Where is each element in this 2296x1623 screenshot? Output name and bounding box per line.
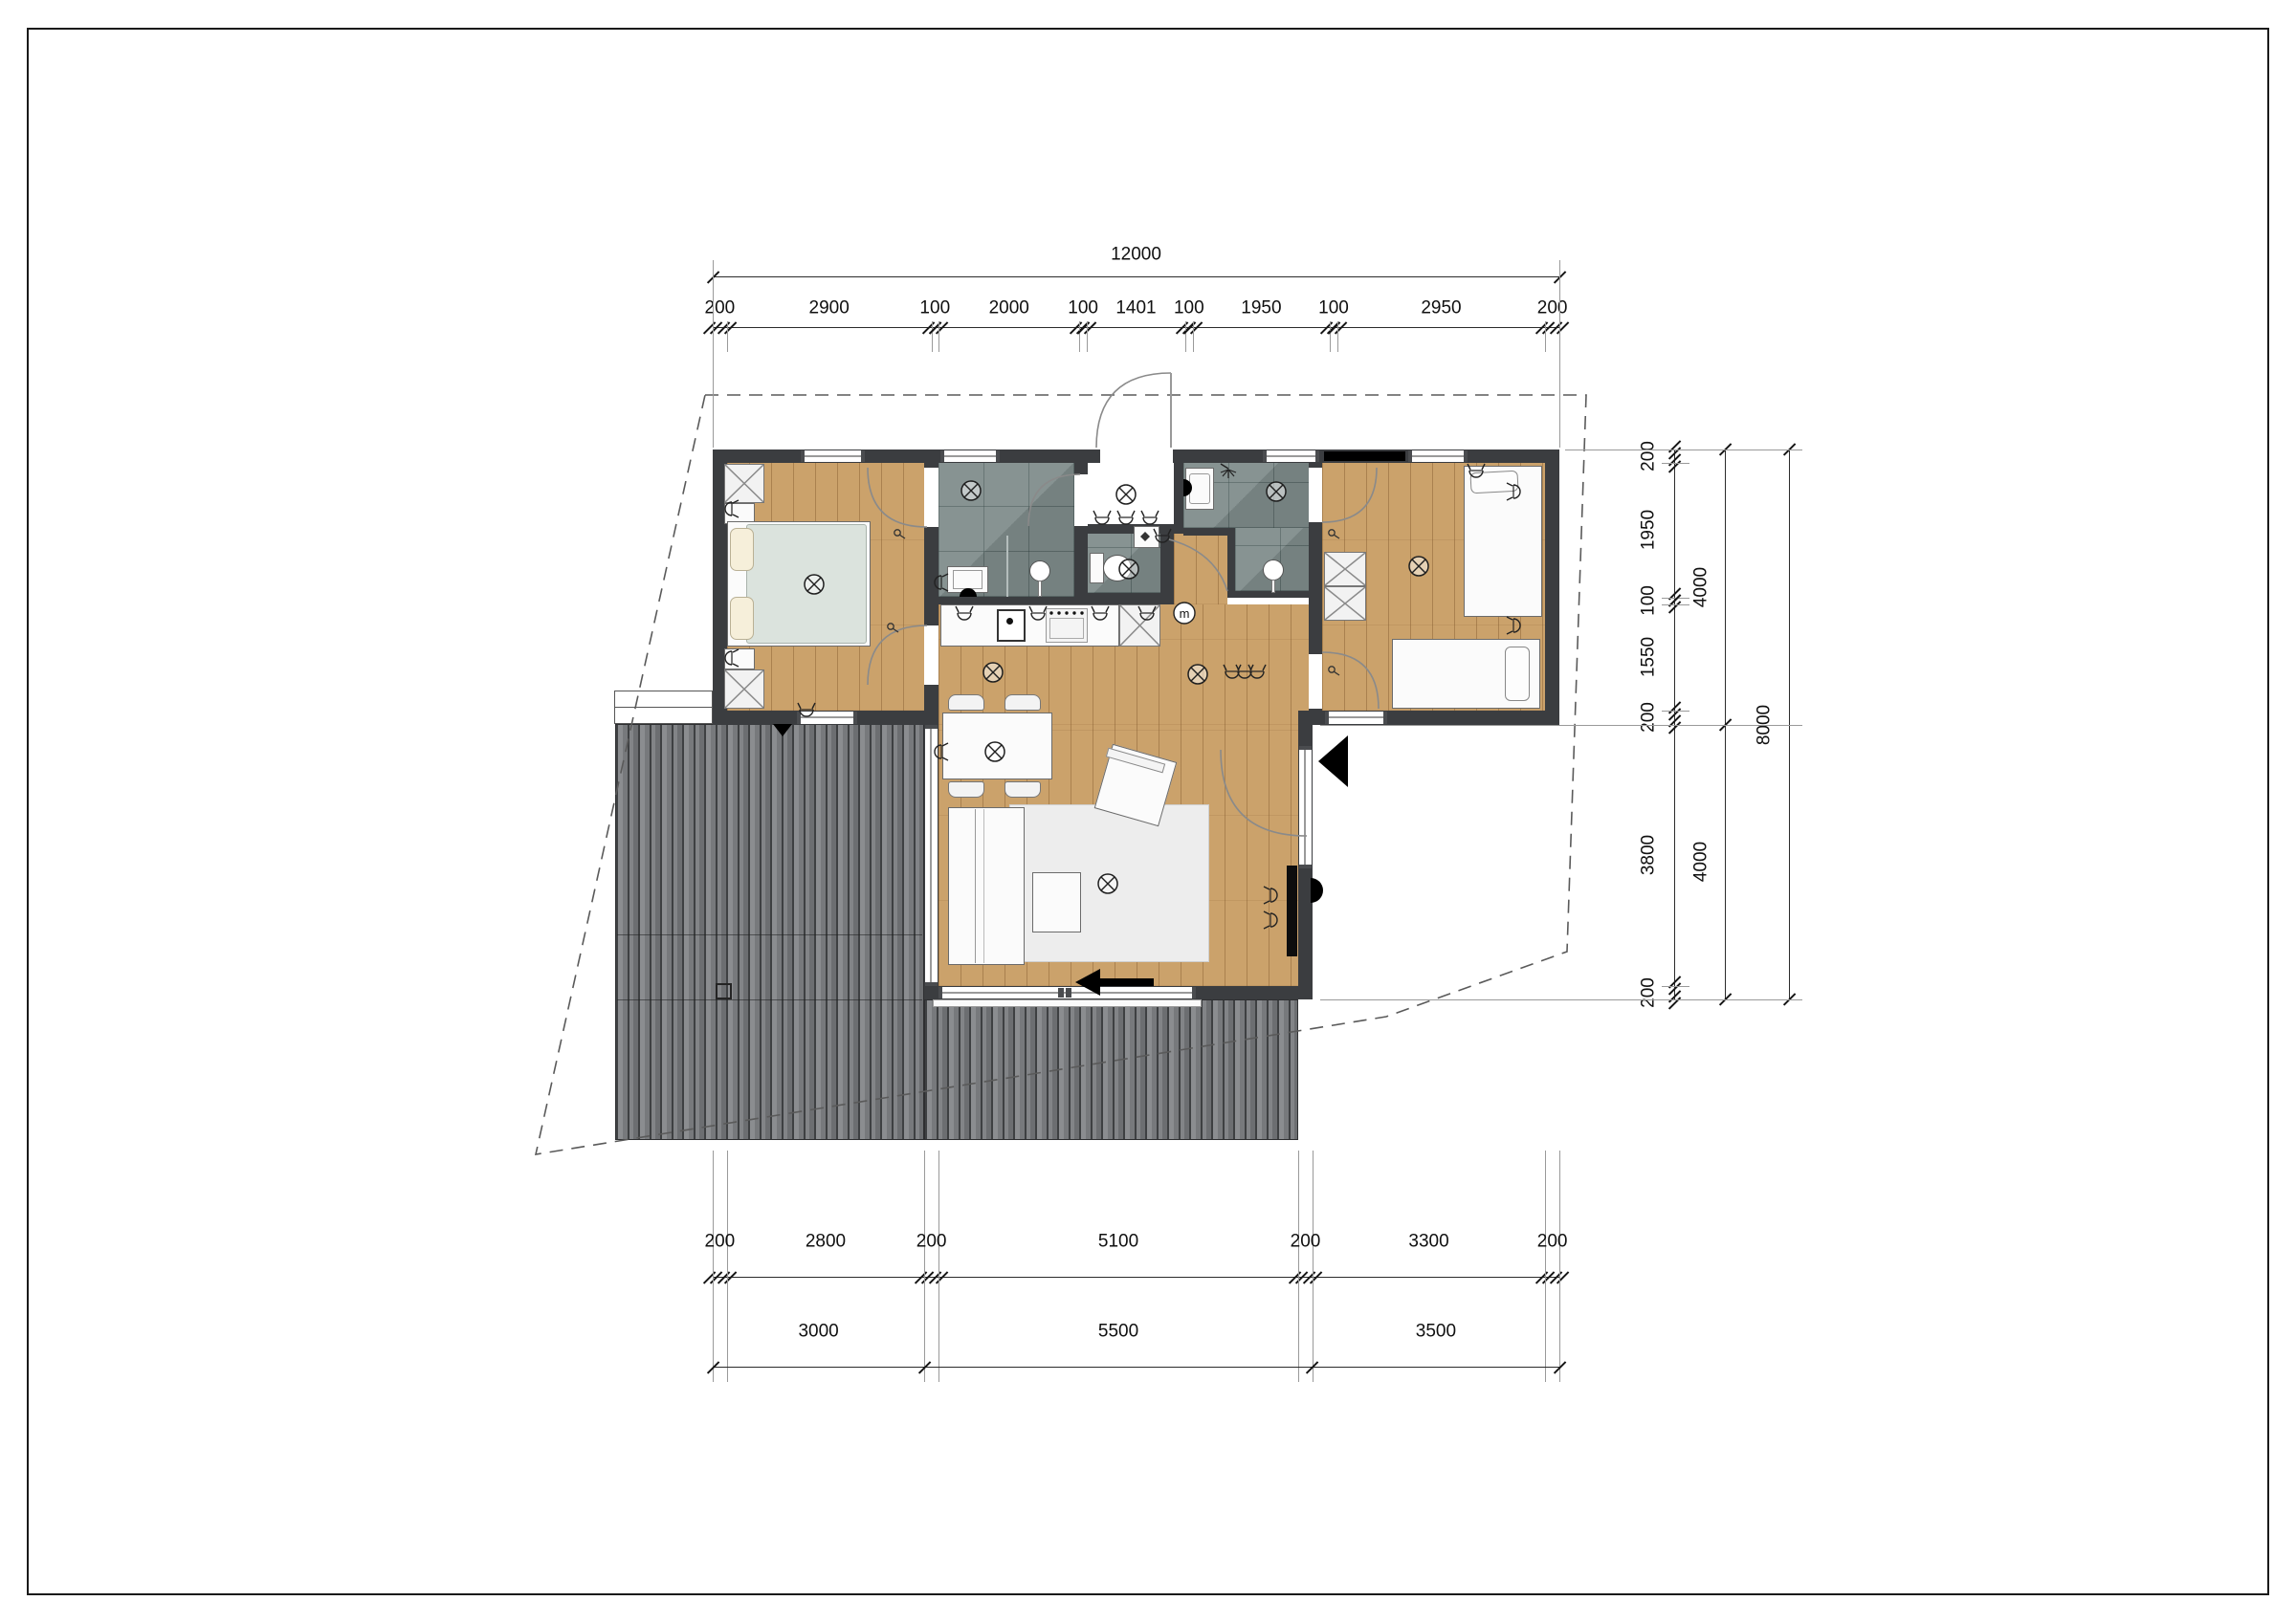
dim-label: 100 (1068, 299, 1098, 318)
socket-icon (1093, 511, 1111, 524)
extension-line (727, 321, 728, 352)
door-handle-icon (888, 624, 898, 632)
dim-label: 200 (705, 1233, 736, 1251)
socket-icon (1507, 483, 1520, 500)
ceiling-light-icon (1119, 559, 1138, 579)
dim-label: 4000 (1692, 842, 1711, 882)
socket-icon (956, 606, 973, 620)
dim-label: 200 (1640, 977, 1658, 1008)
ceiling-light-icon (1267, 482, 1286, 501)
extension-line (1330, 321, 1331, 352)
ceiling-light-icon (983, 663, 1003, 682)
extension-line (932, 321, 933, 352)
dim-label: 3000 (798, 1323, 838, 1341)
extension-line (1662, 463, 1689, 464)
ceiling-light-icon (1116, 485, 1136, 504)
door-swing-icon (1169, 539, 1227, 591)
extension-line (1559, 1151, 1560, 1382)
socket-icon (935, 743, 948, 760)
dim-label: 5100 (1098, 1233, 1138, 1251)
door-handle-icon (1329, 530, 1339, 538)
extension-line (713, 260, 714, 448)
dim-label: 1401 (1115, 299, 1156, 318)
meter-icon: m (1174, 603, 1195, 624)
extension-line (1337, 321, 1338, 352)
dim-label: 100 (1174, 299, 1204, 318)
door-swing-icon (868, 625, 927, 685)
dim-label: 3300 (1408, 1233, 1448, 1251)
extension-line (1662, 711, 1689, 712)
door-swing-icon (868, 468, 927, 527)
dim-label: 100 (1640, 585, 1658, 616)
ceiling-light-icon (1188, 665, 1207, 684)
extension-line (1087, 321, 1088, 352)
dim-label: 200 (916, 1233, 947, 1251)
ceiling-light-icon (961, 481, 981, 500)
socket-icon (1138, 606, 1156, 620)
door-handle-icon (1329, 667, 1339, 675)
ceiling-light-icon (1098, 874, 1117, 893)
dim-label: 200 (705, 299, 736, 318)
dim-line (713, 327, 1559, 328)
cooktop-knob (1072, 611, 1075, 614)
extension-line (1545, 1151, 1546, 1382)
shower-icon (1221, 464, 1236, 478)
cooktop-knob (1057, 611, 1060, 614)
door-swing-icon (1322, 468, 1377, 522)
dim-label: 3500 (1416, 1323, 1456, 1341)
extension-line (1545, 321, 1546, 352)
dim-label: 12000 (1111, 246, 1161, 264)
socket-icon (1154, 529, 1171, 542)
dim-label: 200 (1640, 702, 1658, 733)
cooktop-knob (1080, 611, 1083, 614)
extension-line (1193, 321, 1194, 352)
socket-icon (725, 500, 739, 517)
valve-icon (1140, 532, 1150, 541)
socket-icon (1029, 606, 1047, 620)
dim-label: 2000 (989, 299, 1029, 318)
extension-line (727, 1151, 728, 1382)
dim-label: 100 (1318, 299, 1349, 318)
socket-icon (1248, 665, 1266, 678)
extension-line (1298, 1151, 1299, 1382)
extension-line (1185, 321, 1186, 352)
dim-label: 2950 (1421, 299, 1461, 318)
extension-line (1079, 321, 1080, 352)
dim-label: 4000 (1692, 567, 1711, 607)
door-swing-icon (1322, 652, 1379, 709)
dim-label: 1550 (1640, 637, 1658, 677)
cooktop-knob (1049, 611, 1052, 614)
socket-icon (1468, 464, 1485, 477)
dim-label: 2800 (806, 1233, 846, 1251)
cooktop-knob (1065, 611, 1068, 614)
extension-line (1313, 1151, 1314, 1382)
extension-line (1662, 604, 1689, 605)
extension-line (713, 1151, 714, 1382)
socket-icon (1092, 606, 1109, 620)
dim-label: 2900 (809, 299, 850, 318)
socket-icon (798, 703, 815, 716)
socket-icon (1141, 511, 1159, 524)
floor-plan-sheet: m 12000200290010020001001401100195010029… (0, 0, 2296, 1623)
door-swing-icon (1028, 474, 1080, 526)
dim-label: 5500 (1098, 1323, 1138, 1341)
socket-icon (1117, 511, 1135, 524)
ceiling-light-icon (805, 575, 824, 594)
door-swing-icon (1221, 750, 1307, 836)
door-handle-icon (894, 530, 905, 538)
socket-icon (1264, 911, 1277, 929)
socket-icon (1264, 887, 1277, 904)
socket-icon (725, 649, 739, 667)
dim-label: 1950 (1241, 299, 1281, 318)
extension-line (1320, 999, 1802, 1000)
dim-label: 200 (1537, 1233, 1568, 1251)
extension-line (1320, 725, 1802, 726)
extension-line (1559, 260, 1560, 448)
socket-icon (1507, 617, 1520, 634)
dim-line (713, 276, 1559, 277)
dim-label: 200 (1537, 299, 1568, 318)
extension-line (938, 1151, 939, 1382)
extension-line (1565, 450, 1802, 450)
dim-label: 200 (1640, 441, 1658, 472)
extension-line (924, 1151, 925, 1382)
door-swing-icon (1096, 373, 1171, 448)
svg-text:m: m (1180, 606, 1190, 621)
socket-icon (935, 574, 948, 591)
ceiling-light-icon (1409, 557, 1428, 576)
property-boundary (536, 395, 1586, 1154)
extension-line (1662, 986, 1689, 987)
extension-line (938, 321, 939, 352)
dim-label: 100 (919, 299, 950, 318)
dim-label: 1950 (1640, 510, 1658, 550)
dim-label: 200 (1291, 1233, 1321, 1251)
dim-line (713, 1277, 1559, 1278)
dim-label: 3800 (1640, 835, 1658, 875)
ceiling-light-icon (985, 742, 1004, 761)
dim-line (713, 1367, 1559, 1368)
